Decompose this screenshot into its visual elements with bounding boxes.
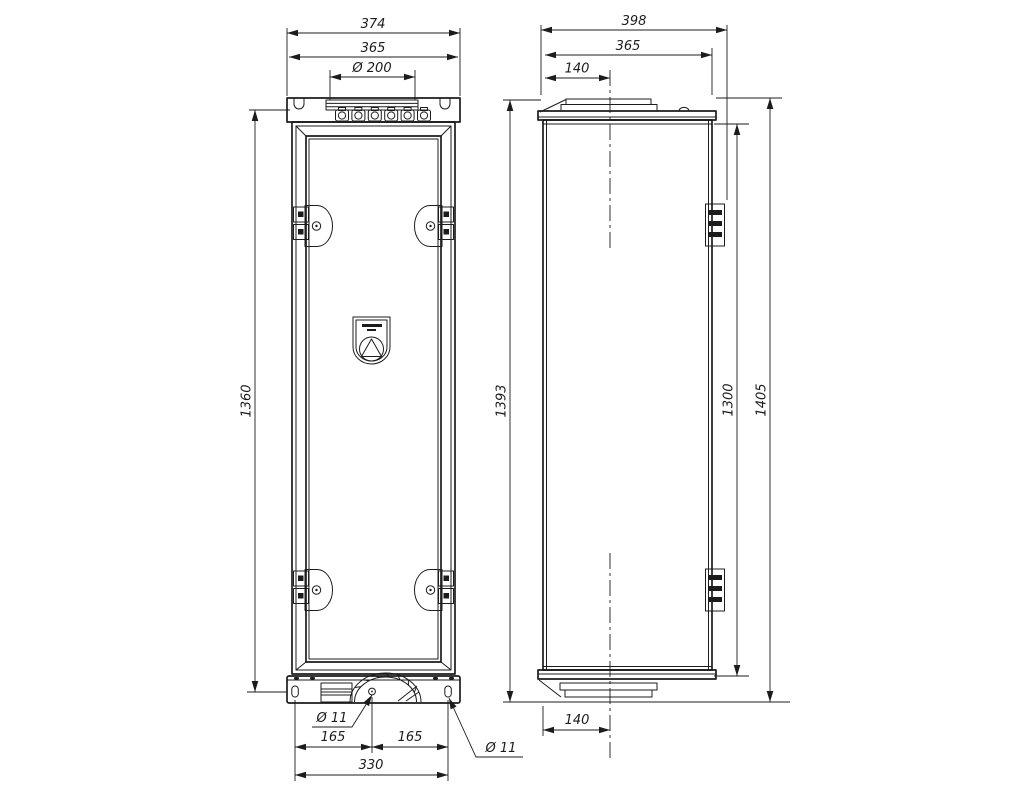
dim-plate-offset-top: 140	[565, 62, 590, 77]
dim-hole-pitch-right: 165	[398, 730, 423, 745]
dim-side-body-height: 1300	[722, 383, 737, 416]
dim-hole-pitch-left: 165	[321, 730, 346, 745]
dim-side-overall-depth: 398	[622, 14, 647, 29]
side-bottom-base	[538, 670, 716, 697]
dim-side-body-depth: 365	[616, 39, 641, 54]
side-body	[543, 120, 712, 670]
bottom-bracket	[321, 683, 352, 702]
cable-entry-dome	[350, 673, 421, 702]
mounting-slot-left	[292, 686, 299, 697]
mounting-slot-right	[445, 686, 452, 697]
hinge-bottom-left	[294, 570, 333, 611]
dim-gland-plate-dia: Ø 200	[351, 61, 391, 76]
technical-drawing: 374 365 Ø 200 1360 165 165 330 Ø 11 Ø 11…	[0, 0, 1024, 786]
front-dimensions: 374 365 Ø 200 1360 165 165 330 Ø 11 Ø 11	[240, 17, 524, 781]
dim-front-overall-width: 374	[361, 17, 386, 32]
dim-plate-offset-bottom: 140	[565, 713, 590, 728]
dim-center-hole-dia: Ø 11	[316, 711, 348, 726]
drawing-canvas: 374 365 Ø 200 1360 165 165 330 Ø 11 Ø 11…	[0, 0, 1024, 786]
lifting-slot-left	[294, 98, 304, 109]
side-view	[538, 70, 725, 760]
logo-badge	[353, 317, 390, 364]
side-top-canopy	[538, 99, 716, 120]
front-bottom-flange	[287, 676, 460, 703]
front-view	[287, 98, 460, 703]
dim-side-overall-height: 1405	[755, 383, 770, 416]
dim-corner-hole-dia: Ø 11	[485, 741, 517, 756]
dim-front-inner-width: 365	[361, 41, 386, 56]
side-dimensions: 398 365 140 1393 1300 1405 140	[495, 14, 791, 736]
logo-text-mark	[367, 329, 376, 331]
dim-frame-height: 1360	[240, 384, 255, 417]
lifting-slot-right	[440, 98, 450, 109]
hinge-top-right	[414, 206, 453, 247]
triangle-in-circle-icon	[360, 337, 384, 361]
logo-text-mark	[362, 324, 382, 327]
hinge-bottom-right	[414, 570, 453, 611]
dim-side-left-height: 1393	[495, 384, 510, 417]
dim-hole-span: 330	[359, 758, 384, 773]
front-frame	[292, 122, 455, 674]
hinge-top-left	[294, 206, 333, 247]
